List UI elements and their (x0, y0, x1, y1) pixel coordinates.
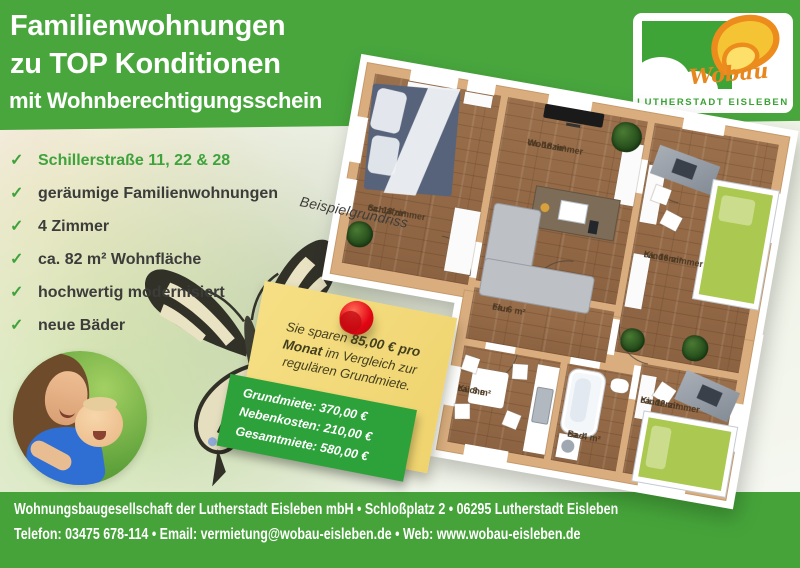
chair (455, 404, 470, 419)
title-line-1: Familienwohnungen (10, 10, 285, 43)
laptop (558, 200, 589, 225)
title-line-2: zu TOP Konditionen (10, 48, 281, 81)
pillow (645, 425, 672, 470)
feature-item: ✓ geräumige Familienwohnungen (10, 183, 278, 203)
feature-item: ✓ hochwertig modernisiert (10, 282, 278, 302)
phone (588, 220, 599, 234)
feature-item-address: ✓ Schillerstraße 11, 22 & 28 (10, 150, 278, 170)
feature-item: ✓ ca. 82 m² Wohnfläche (10, 249, 278, 269)
check-icon: ✓ (10, 249, 38, 269)
feature-item: ✓ neue Bäder (10, 315, 278, 335)
check-icon: ✓ (10, 183, 38, 203)
laptop (696, 384, 722, 407)
pillow (369, 87, 408, 135)
footer-contact: Telefon: 03475 678-114 • Email: vermietu… (14, 526, 580, 544)
check-icon: ✓ (10, 216, 38, 236)
check-icon: ✓ (10, 150, 38, 170)
wobau-logo: Wobau LUTHERSTADT EISLEBEN (633, 13, 793, 113)
feature-item: ✓ 4 Zimmer (10, 216, 278, 236)
laptop (671, 158, 697, 180)
feature-list: ✓ Schillerstraße 11, 22 & 28 ✓ geräumige… (10, 150, 278, 348)
check-icon: ✓ (10, 315, 38, 335)
family-photo (13, 351, 147, 485)
sink (531, 386, 554, 424)
bathtub-basin (569, 377, 592, 423)
check-icon: ✓ (10, 282, 38, 302)
washer-drum (560, 439, 575, 454)
mug (540, 202, 550, 212)
double-bed (364, 83, 461, 196)
child-hair (83, 397, 117, 411)
title-line-3: mit Wohnberechtigungsschein (9, 88, 322, 114)
pillow (718, 195, 756, 227)
footer-address: Wohnungsbaugesellschaft der Lutherstadt … (14, 501, 618, 519)
logo-brand-text: Wobau (688, 58, 769, 90)
chair (512, 364, 528, 380)
footer: Wohnungsbaugesellschaft der Lutherstadt … (0, 492, 800, 568)
